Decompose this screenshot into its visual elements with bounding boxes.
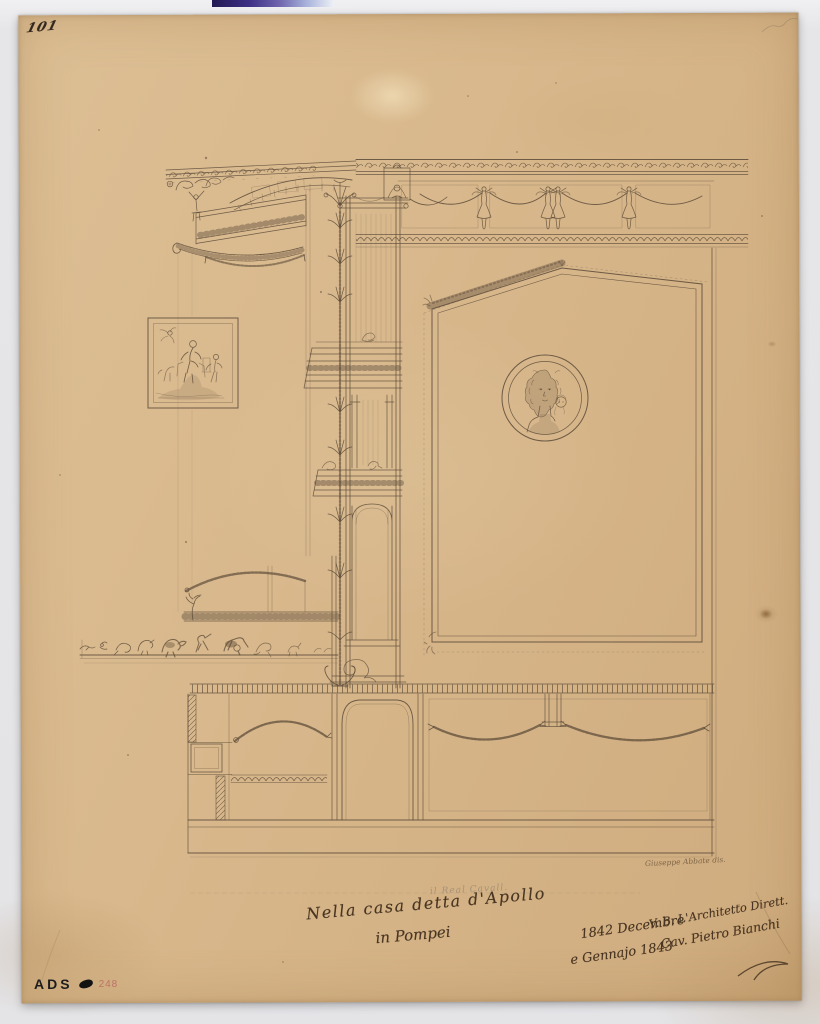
top-frieze-right: [356, 160, 748, 248]
dado-panels: [188, 684, 714, 857]
archive-stamp: ADS 248: [34, 976, 118, 992]
top-frieze-left: [166, 161, 356, 211]
stamp-label: ADS: [34, 976, 73, 992]
scanned-document-page: 101 il Real Cavall. Nella casa detta d'A…: [0, 0, 820, 1024]
large-panel: [423, 248, 716, 856]
cornice-perspective: [173, 191, 306, 612]
animal-frieze: [80, 634, 338, 663]
paper-speckles: [59, 82, 763, 963]
signature-flourish-icon: [738, 962, 788, 980]
stamp-number: 248: [99, 979, 119, 990]
wall-decoration-drawing: [0, 0, 820, 1024]
medallion-portrait: [502, 355, 588, 441]
candelabrum: [324, 180, 356, 686]
framed-picture: [148, 318, 238, 408]
pencil-scribble-icon: [762, 18, 798, 32]
left-wall-middle: [184, 566, 338, 621]
stamp-logo-icon: [78, 979, 93, 990]
